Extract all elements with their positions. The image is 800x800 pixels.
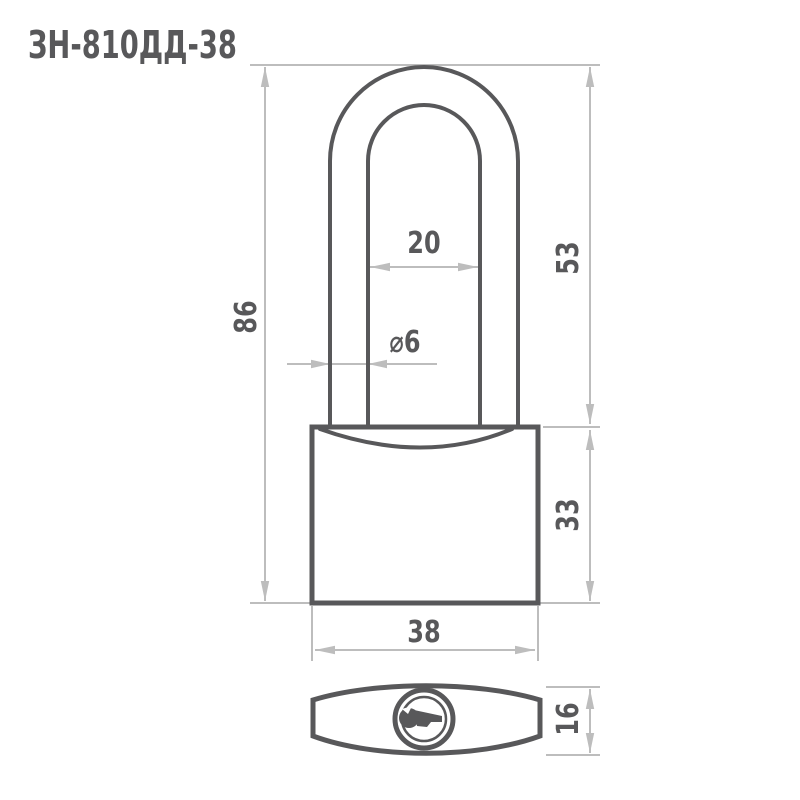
total-height-label: 86 — [229, 300, 263, 333]
extension-lines — [250, 65, 600, 755]
shackle-wire-diameter-label: ⌀6 — [389, 325, 420, 359]
shackle-inner-width-label: 20 — [407, 226, 440, 260]
technical-drawing-canvas: ЗН-810ДД-38 20 ⌀6 86 53 33 38 16 — [0, 0, 800, 800]
dimension-lines — [265, 67, 590, 753]
body-width-label: 38 — [407, 615, 440, 649]
body-top-recess-arc — [320, 429, 512, 448]
key-shaft — [414, 710, 442, 727]
key-silhouette-icon — [399, 706, 442, 728]
body-outline — [312, 427, 538, 603]
wire-diameter-right-arrowhead — [368, 360, 387, 368]
body-depth-label: 16 — [551, 702, 585, 735]
drawing-title: ЗН-810ДД-38 — [28, 22, 237, 67]
shackle-height-label: 53 — [551, 241, 585, 274]
front-view — [312, 67, 538, 603]
drawing-sheet: ЗН-810ДД-38 20 ⌀6 86 53 33 38 16 — [0, 0, 800, 800]
wire-diameter-left-arrowhead — [311, 360, 330, 368]
bottom-view — [313, 686, 540, 754]
body-height-label: 33 — [551, 498, 585, 531]
